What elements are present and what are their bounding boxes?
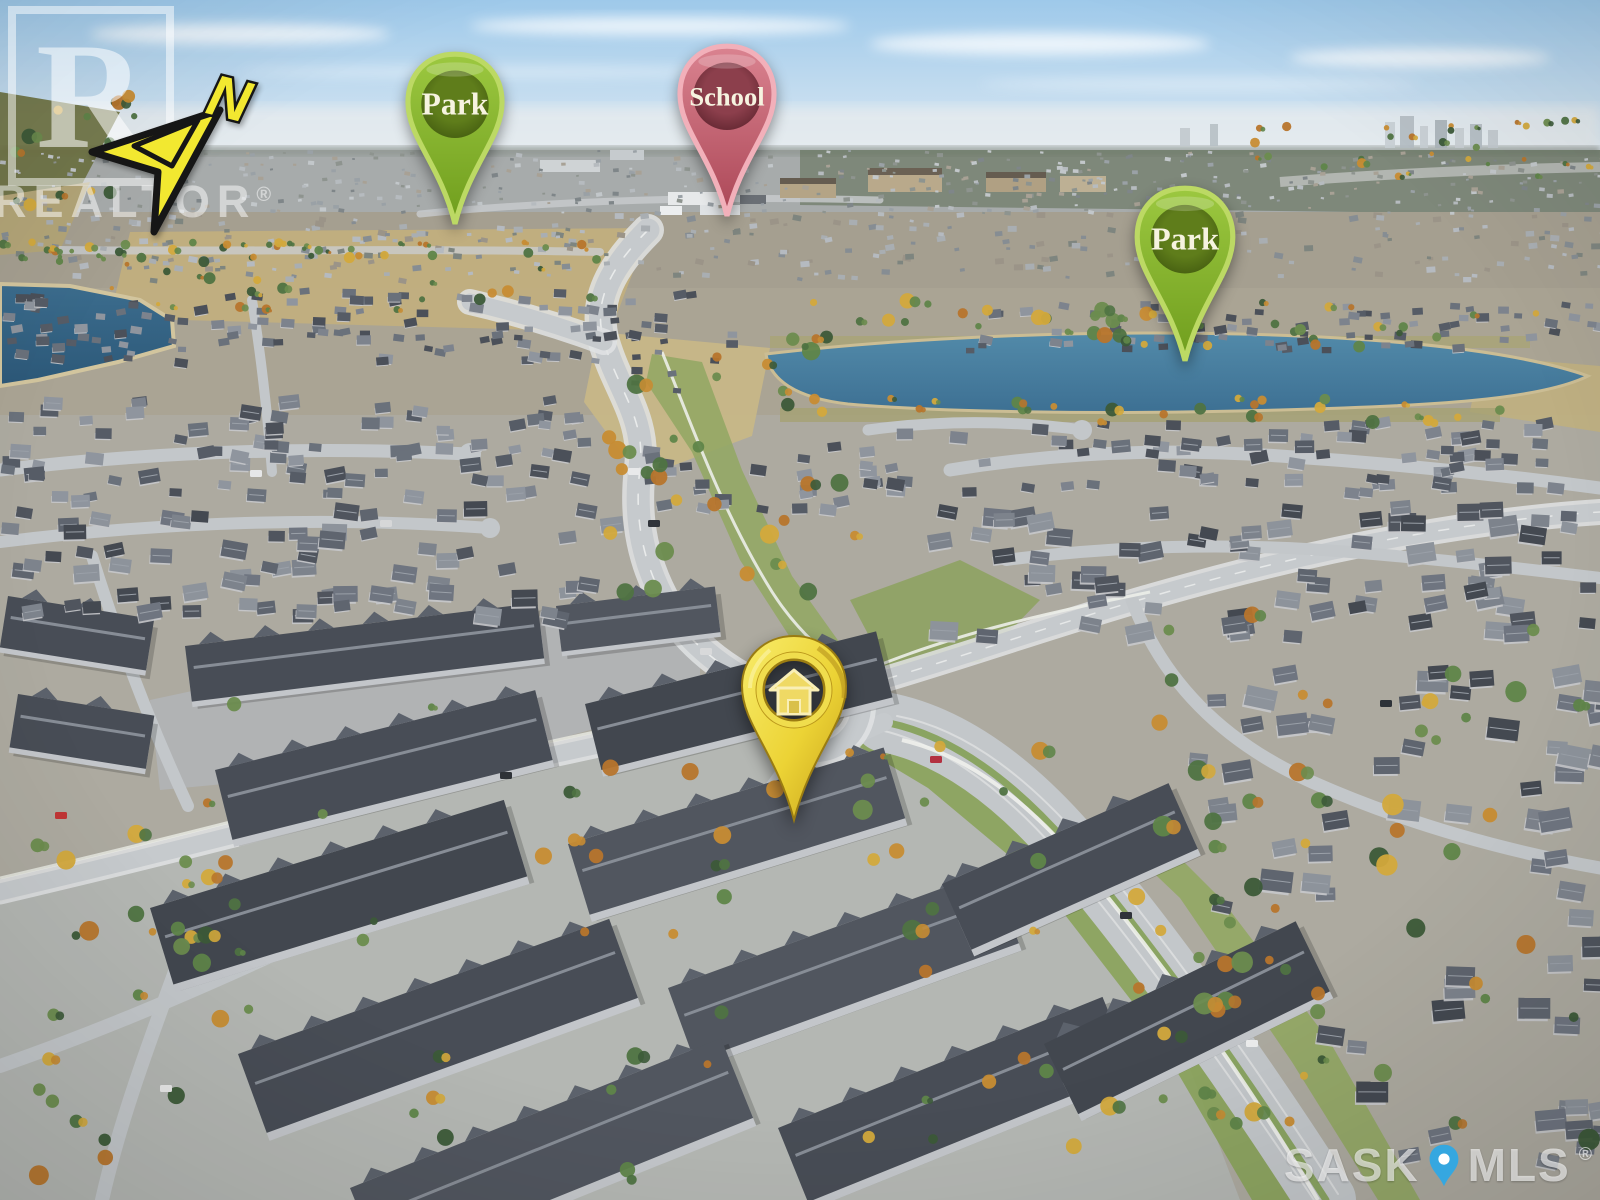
watermark-registered: ® xyxy=(1579,1144,1594,1165)
map-pin-home xyxy=(726,628,862,828)
north-arrow-icon: N xyxy=(70,60,280,245)
pin-label-school: School xyxy=(689,81,764,111)
map-pin-park-east: Park xyxy=(1122,182,1248,367)
home-icon xyxy=(770,670,818,714)
aerial-listing-photo: R REALTOR® N Park xyxy=(0,0,1600,1200)
watermark-prefix: SASK xyxy=(1284,1138,1420,1192)
watermark-suffix: MLS xyxy=(1468,1138,1571,1192)
pin-label-park-east: Park xyxy=(1151,221,1219,257)
sask-mls-watermark: SASK MLS ® xyxy=(1284,1138,1594,1192)
map-pin-park-west: Park xyxy=(393,48,517,230)
north-label: N xyxy=(201,62,258,135)
mls-pin-icon xyxy=(1428,1143,1460,1188)
pin-label-park-west: Park xyxy=(422,86,489,121)
map-pin-school: School xyxy=(665,40,789,222)
